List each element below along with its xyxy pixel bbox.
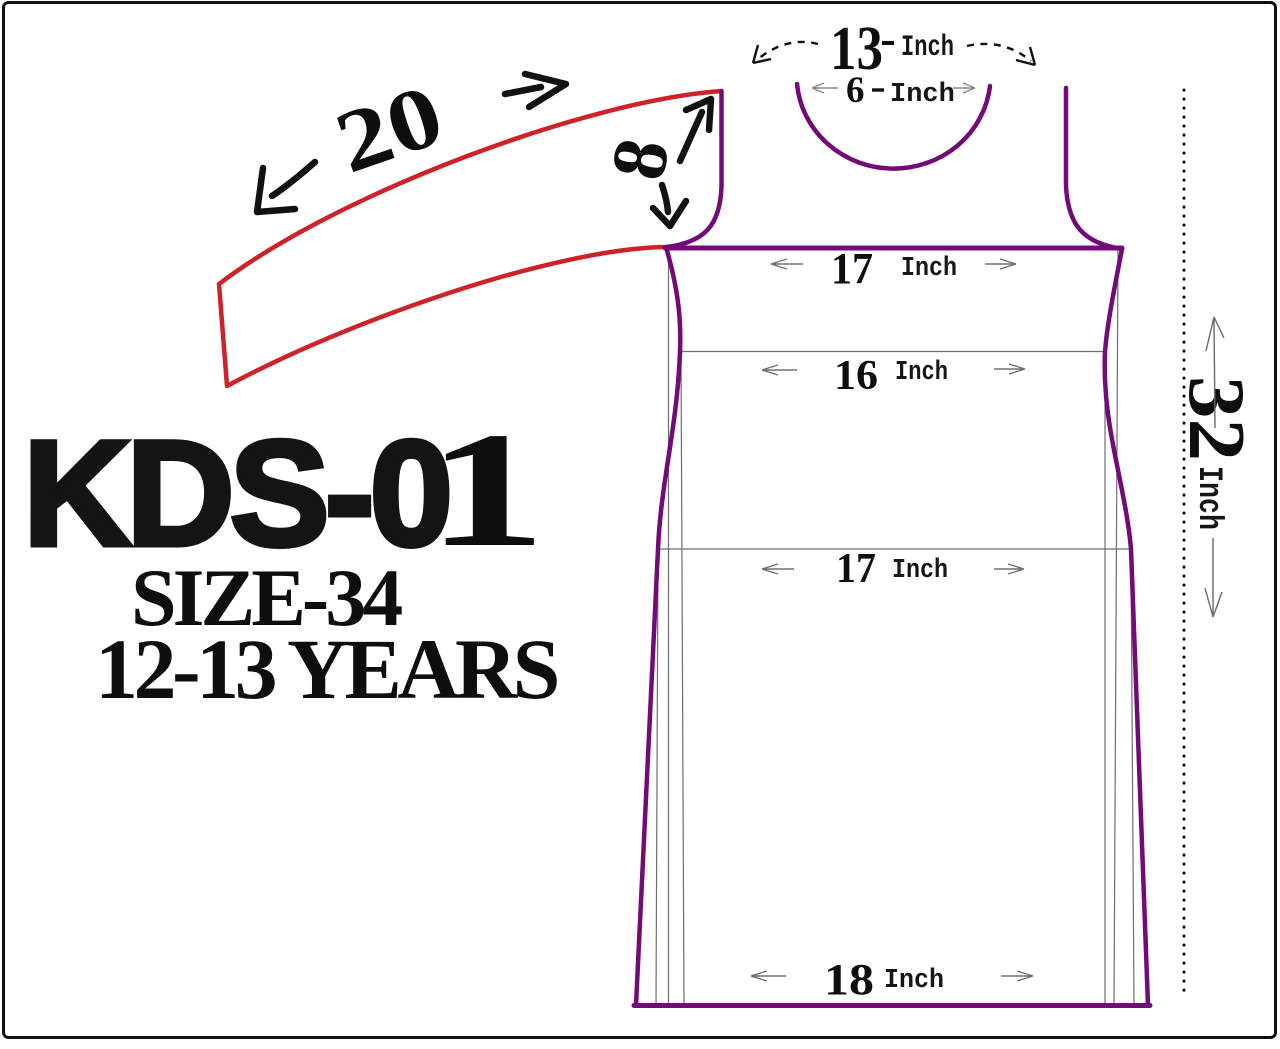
svg-text:Inch: Inch — [901, 254, 957, 284]
svg-text:12-13 YEARS: 12-13 YEARS — [95, 621, 558, 717]
svg-text:Inch: Inch — [890, 80, 955, 110]
svg-text:Inch: Inch — [884, 966, 944, 996]
svg-text:Inch: Inch — [892, 556, 948, 586]
svg-text:17: 17 — [836, 546, 876, 592]
svg-text:18: 18 — [824, 955, 874, 1004]
svg-text:Inch: Inch — [1189, 466, 1227, 530]
svg-text:17: 17 — [831, 244, 873, 293]
svg-text:Inch: Inch — [901, 31, 954, 65]
svg-text:6: 6 — [846, 70, 865, 111]
svg-text:16: 16 — [834, 353, 878, 399]
svg-text:Inch: Inch — [895, 358, 948, 388]
svg-text:1: 1 — [427, 399, 547, 581]
svg-text:32: 32 — [1172, 376, 1260, 461]
